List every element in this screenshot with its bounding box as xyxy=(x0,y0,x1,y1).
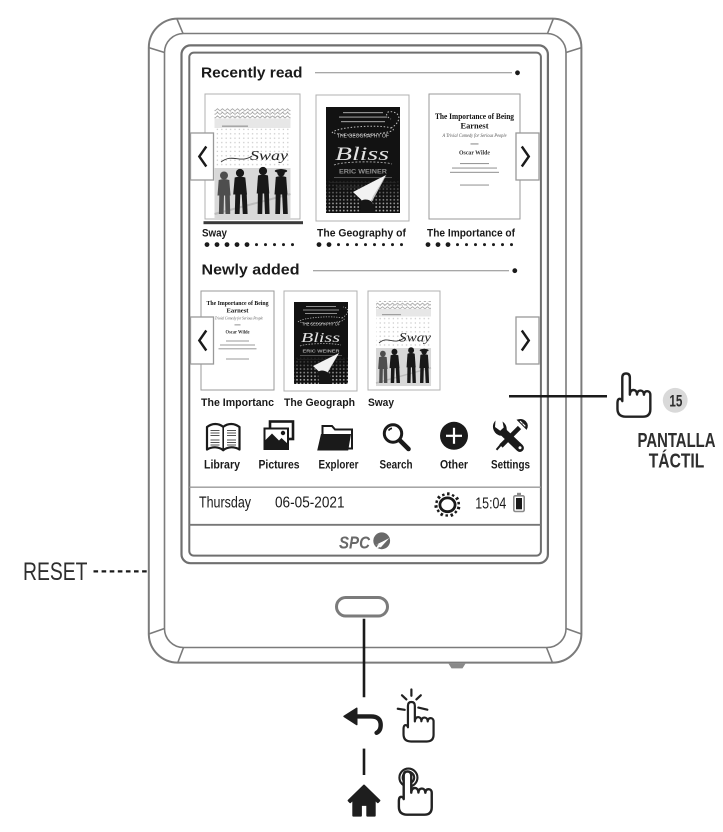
svg-text:Pictures: Pictures xyxy=(259,459,300,471)
svg-text:RESET: RESET xyxy=(23,558,88,586)
svg-text:15: 15 xyxy=(669,393,682,411)
svg-text:Sway: Sway xyxy=(368,397,395,409)
svg-text:ERIC WEINER: ERIC WEINER xyxy=(303,349,341,355)
svg-text:Bliss: Bliss xyxy=(335,144,389,165)
svg-text:Sway: Sway xyxy=(399,331,432,345)
svg-text:THE GEOGRAPHY OF: THE GEOGRAPHY OF xyxy=(337,134,390,140)
svg-text:The Importance of Being: The Importance of Being xyxy=(207,300,270,307)
svg-text:TÁCTIL: TÁCTIL xyxy=(649,450,705,473)
svg-text:The Importance of Being: The Importance of Being xyxy=(435,112,515,121)
svg-text:Sway: Sway xyxy=(202,227,228,239)
svg-text:Thursday: Thursday xyxy=(199,495,251,512)
svg-text:The Geograph: The Geograph xyxy=(284,397,355,409)
svg-text:THE GEOGRAPHY OF: THE GEOGRAPHY OF xyxy=(302,322,340,327)
svg-text:A Trivial Comedy for Serious P: A Trivial Comedy for Serious People xyxy=(211,315,263,320)
svg-text:Earnest: Earnest xyxy=(461,122,489,131)
svg-text:ERIC WEINER: ERIC WEINER xyxy=(339,169,388,176)
svg-text:Newly added: Newly added xyxy=(202,262,300,279)
svg-text:SPC: SPC xyxy=(339,533,370,553)
svg-text:Settings: Settings xyxy=(491,459,530,471)
svg-text:Recently read: Recently read xyxy=(201,65,303,82)
svg-text:15:04: 15:04 xyxy=(475,496,506,513)
svg-text:A Trivial Comedy for Serious P: A Trivial Comedy for Serious People xyxy=(442,132,507,139)
svg-text:Search: Search xyxy=(380,459,413,471)
svg-text:The Importanc: The Importanc xyxy=(201,397,274,409)
svg-text:Oscar Wilde: Oscar Wilde xyxy=(226,330,251,336)
svg-text:06-05-2021: 06-05-2021 xyxy=(275,495,345,512)
svg-text:Oscar Wilde: Oscar Wilde xyxy=(459,150,490,157)
svg-text:Earnest: Earnest xyxy=(227,308,250,315)
svg-text:The Importance of: The Importance of xyxy=(427,227,515,239)
svg-text:Sway: Sway xyxy=(250,149,289,164)
svg-text:Other: Other xyxy=(440,459,468,471)
svg-text:PANTALLA: PANTALLA xyxy=(638,430,716,452)
svg-text:The Geography of: The Geography of xyxy=(317,227,406,239)
svg-text:Explorer: Explorer xyxy=(319,459,359,471)
svg-text:Library: Library xyxy=(204,459,241,471)
